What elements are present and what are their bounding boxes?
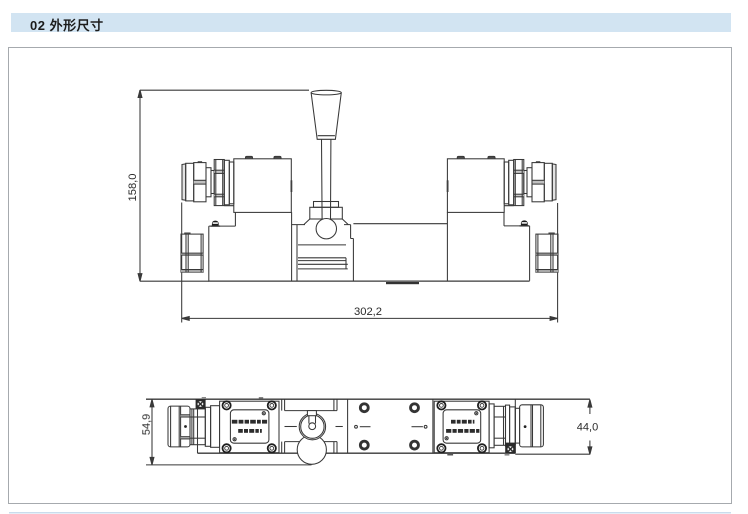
svg-text:44,0: 44,0	[577, 421, 598, 433]
svg-text:302,2: 302,2	[354, 306, 382, 318]
svg-text:54,9: 54,9	[141, 414, 153, 435]
svg-text:158,0: 158,0	[127, 174, 139, 202]
